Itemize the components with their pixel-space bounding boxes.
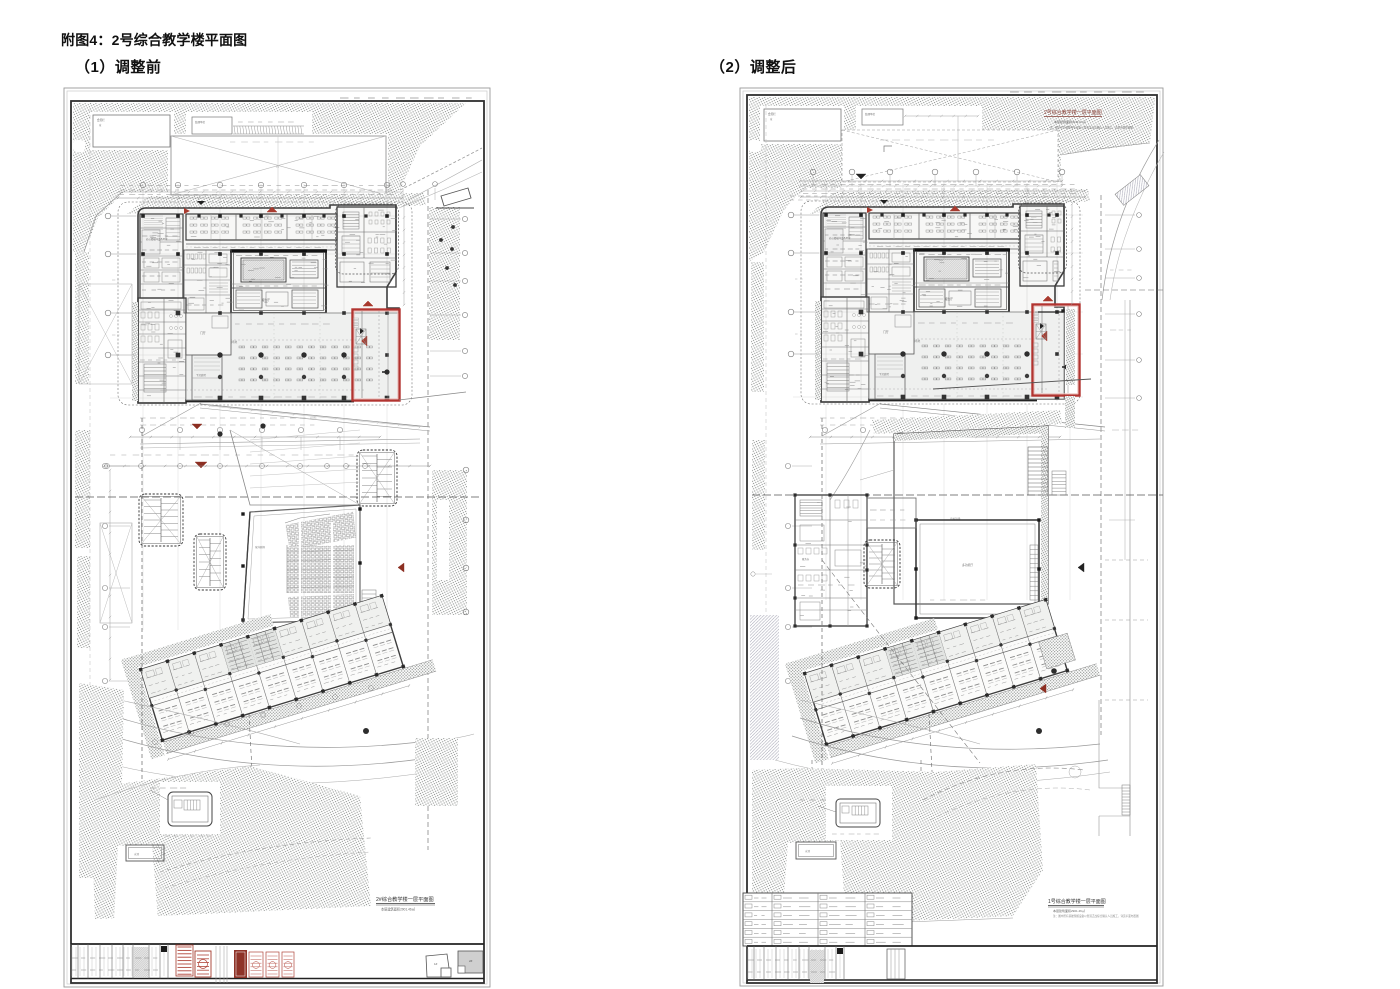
- svg-text:办公楼梯间设备用房: 办公楼梯间设备用房: [829, 236, 851, 240]
- svg-text:室外剧场: 室外剧场: [255, 545, 266, 549]
- svg-text:监理单位: 监理单位: [195, 120, 206, 124]
- svg-text:2#综合教学楼一层平面图: 2#综合教学楼一层平面图: [376, 895, 434, 903]
- svg-text:1号综合教学楼一层平面图: 1号综合教学楼一层平面图: [1048, 898, 1106, 905]
- svg-text:门厅: 门厅: [200, 331, 206, 335]
- svg-text:会签栏: 会签栏: [97, 118, 105, 122]
- svg-text:报告厅: 报告厅: [262, 298, 270, 302]
- svg-text:水池: 水池: [805, 849, 811, 853]
- svg-text:监理单位: 监理单位: [865, 112, 876, 116]
- svg-text:办公楼梯间设备用房: 办公楼梯间设备用房: [146, 237, 168, 241]
- svg-text:本层建筑面积2901.46㎡: 本层建筑面积2901.46㎡: [381, 907, 416, 912]
- svg-text:注：图中所有基础预留设备以管道迁改综合确认人员施工，详见平面: 注：图中所有基础预留设备以管道迁改综合确认人员施工，详见平面布置图: [1053, 914, 1139, 918]
- svg-text:门厅: 门厅: [883, 330, 889, 334]
- svg-text:1#: 1#: [434, 962, 438, 966]
- svg-text:本层建筑面积3011.94㎡: 本层建筑面积3011.94㎡: [1054, 119, 1086, 124]
- svg-text:2#: 2#: [469, 959, 473, 963]
- svg-text:水池: 水池: [134, 852, 140, 856]
- svg-text:注：图中灰色调整所有设备以管道迁改后确认人员施工，详见平面布: 注：图中灰色调整所有设备以管道迁改后确认人员施工，详见平面布置图: [1050, 126, 1133, 130]
- svg-text:下沉庭院: 下沉庭院: [196, 373, 207, 377]
- svg-text:多功能厅: 多功能厅: [962, 563, 973, 567]
- svg-text:报告厅: 报告厅: [945, 297, 953, 301]
- svg-text:会签栏: 会签栏: [768, 112, 776, 116]
- svg-text:本层建筑面积2901.46㎡: 本层建筑面积2901.46㎡: [1053, 908, 1085, 913]
- svg-text:2号综合教学楼一层平面图: 2号综合教学楼一层平面图: [1044, 109, 1102, 116]
- svg-text:下沉庭院: 下沉庭院: [879, 372, 890, 376]
- svg-text:教务办: 教务办: [802, 557, 810, 561]
